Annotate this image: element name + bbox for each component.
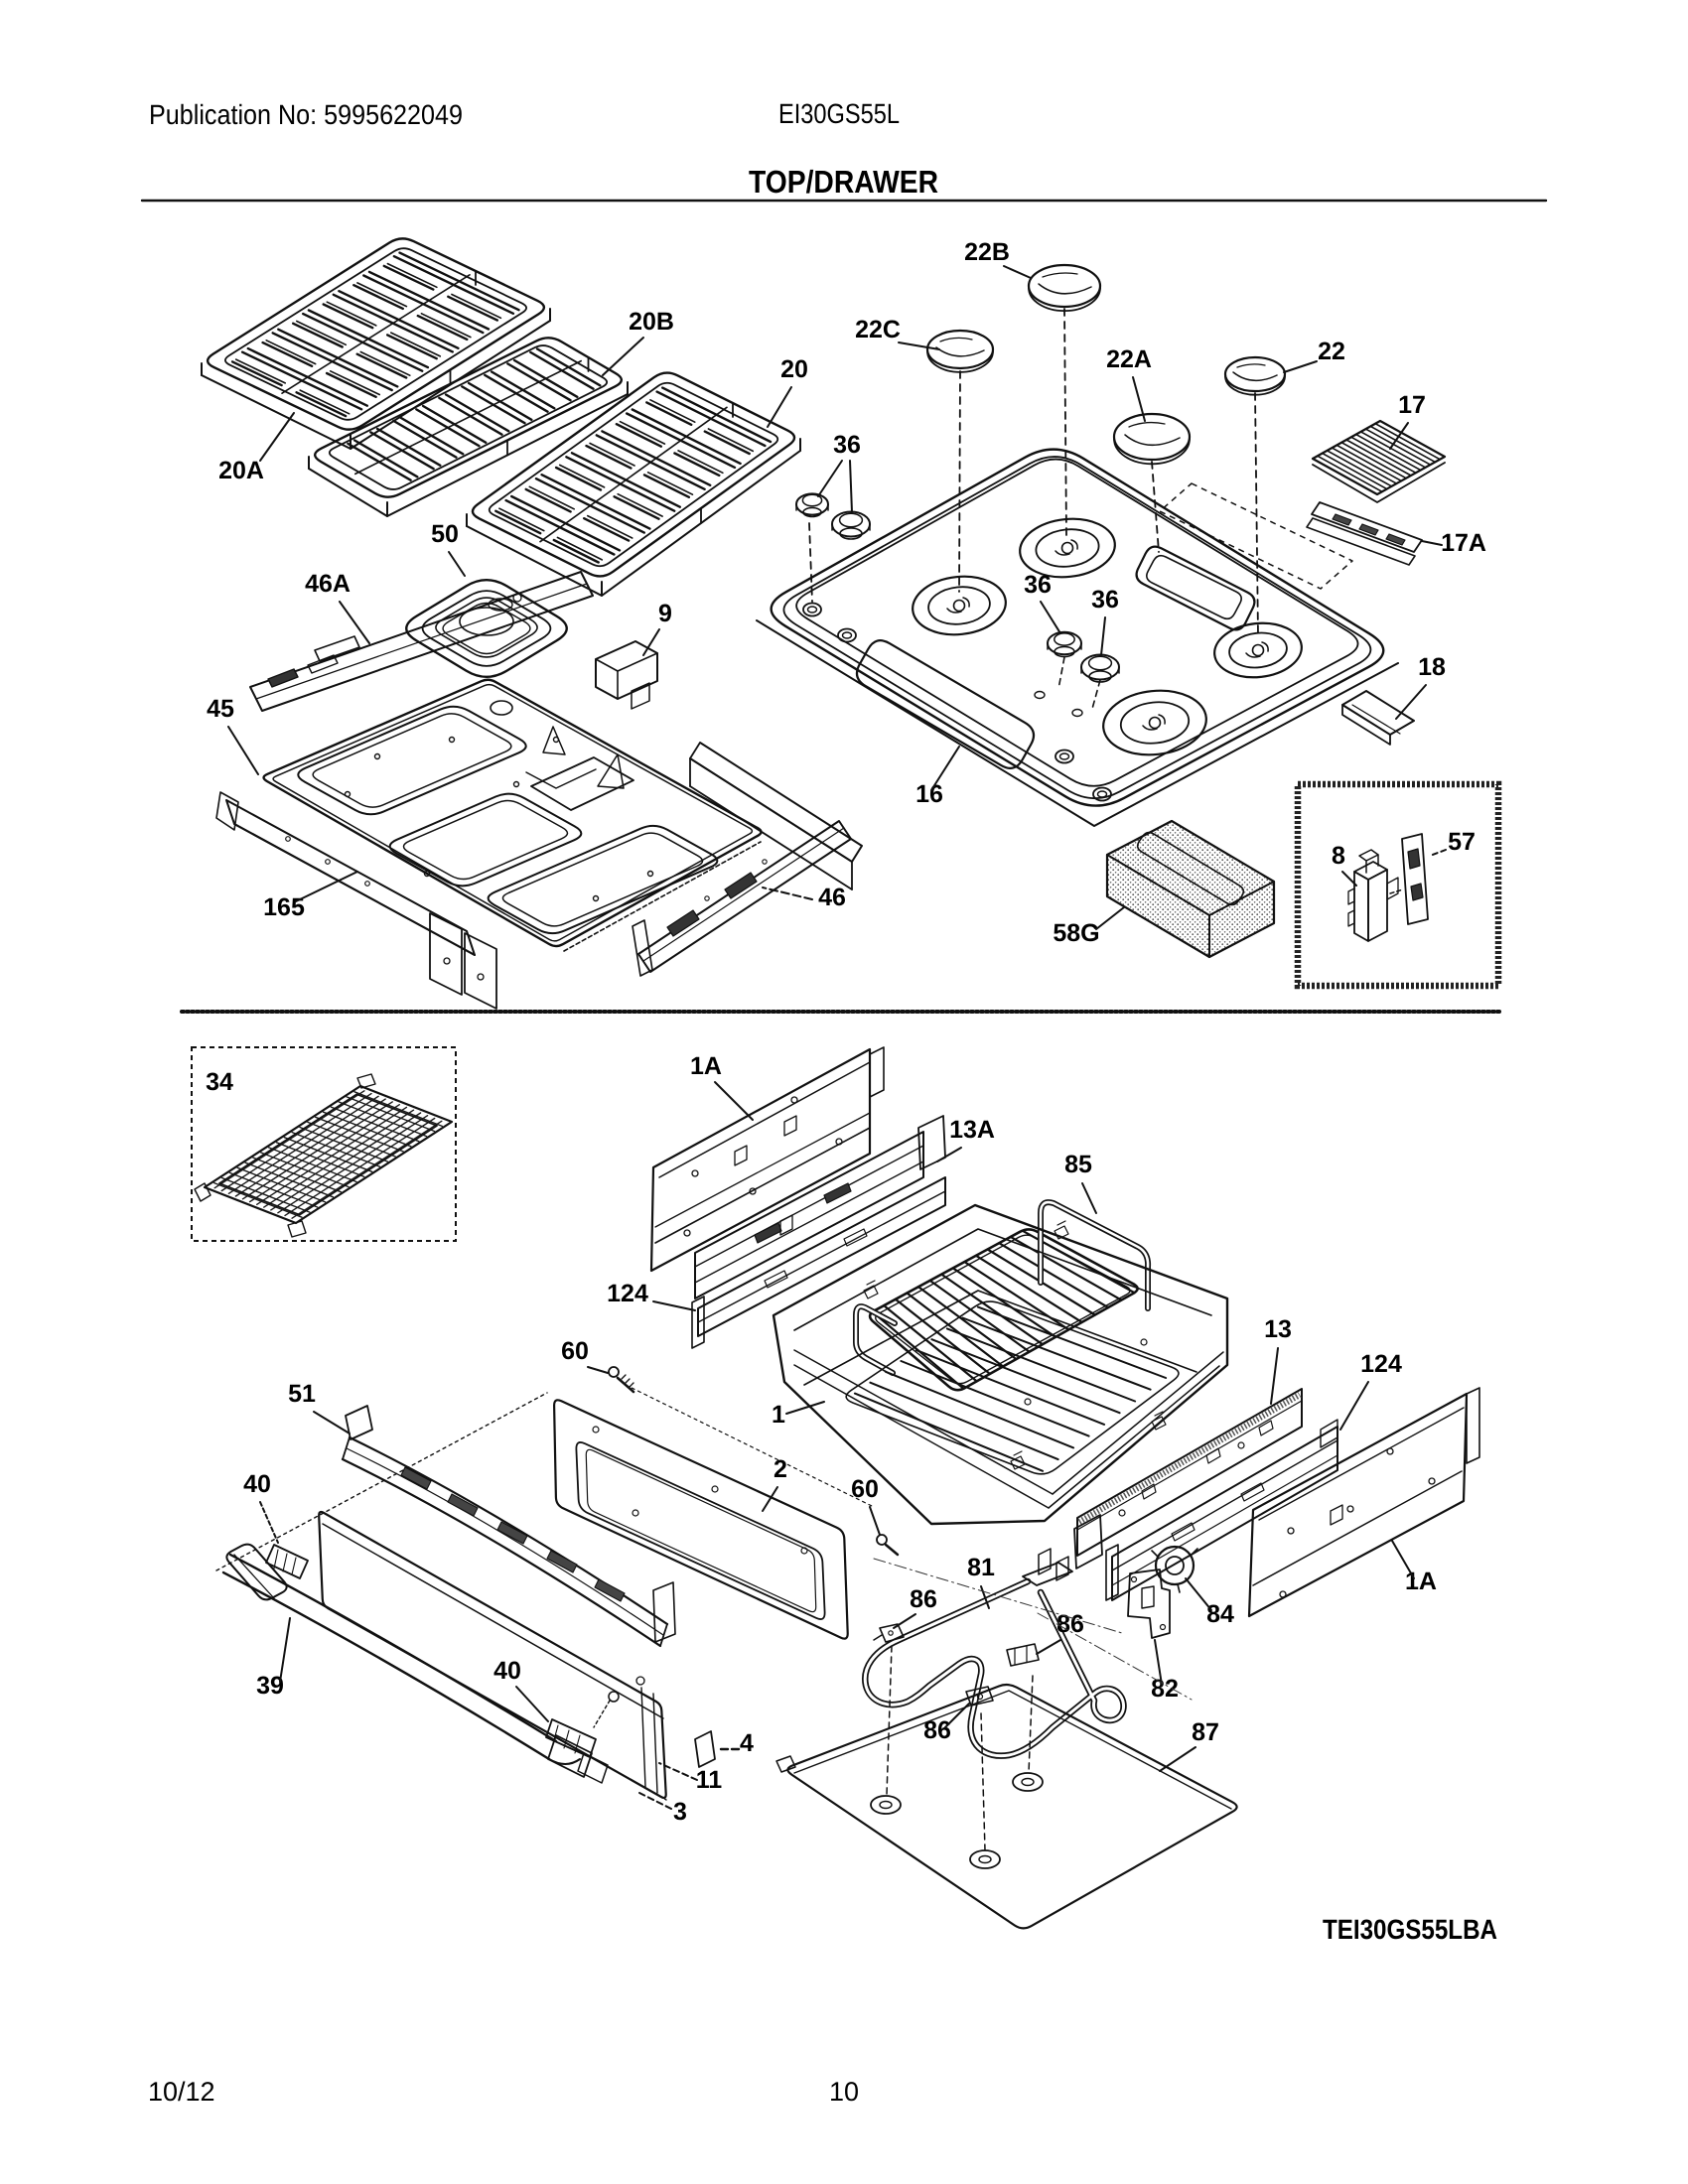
svg-text:85: 85 — [1064, 1151, 1092, 1178]
svg-text:39: 39 — [256, 1672, 284, 1700]
svg-text:36: 36 — [833, 431, 861, 459]
svg-text:45: 45 — [207, 695, 234, 723]
svg-text:57: 57 — [1448, 828, 1476, 856]
svg-text:22B: 22B — [964, 238, 1010, 266]
svg-text:81: 81 — [967, 1554, 995, 1581]
svg-text:86: 86 — [1056, 1610, 1084, 1638]
svg-text:10: 10 — [829, 2077, 859, 2107]
svg-text:TOP/DRAWER: TOP/DRAWER — [749, 164, 938, 200]
svg-text:Publication No: 5995622049: Publication No: 5995622049 — [149, 99, 463, 130]
svg-text:36: 36 — [1024, 571, 1052, 599]
svg-text:165: 165 — [263, 893, 305, 921]
svg-text:2: 2 — [774, 1455, 787, 1483]
svg-text:18: 18 — [1418, 653, 1446, 681]
svg-text:16: 16 — [915, 780, 943, 808]
svg-text:50: 50 — [431, 520, 459, 548]
svg-text:46: 46 — [818, 884, 846, 911]
svg-text:40: 40 — [243, 1470, 271, 1498]
svg-text:TEI30GS55LBA: TEI30GS55LBA — [1323, 1914, 1497, 1945]
svg-text:36: 36 — [1091, 586, 1119, 614]
svg-text:EI30GS55L: EI30GS55L — [778, 98, 900, 129]
svg-text:40: 40 — [493, 1657, 521, 1685]
svg-text:86: 86 — [923, 1716, 951, 1744]
svg-text:22: 22 — [1318, 338, 1345, 365]
svg-text:1A: 1A — [690, 1052, 722, 1080]
svg-text:11: 11 — [696, 1766, 723, 1794]
svg-text:4: 4 — [740, 1729, 754, 1757]
svg-text:20A: 20A — [218, 457, 264, 484]
svg-text:34: 34 — [206, 1068, 233, 1096]
svg-text:86: 86 — [910, 1585, 937, 1613]
svg-text:51: 51 — [288, 1380, 316, 1408]
svg-text:60: 60 — [561, 1337, 589, 1365]
svg-text:13: 13 — [1264, 1315, 1292, 1343]
svg-text:9: 9 — [658, 600, 672, 627]
svg-text:87: 87 — [1192, 1718, 1219, 1746]
svg-text:124: 124 — [607, 1280, 648, 1307]
svg-text:1: 1 — [772, 1401, 785, 1429]
svg-text:3: 3 — [673, 1798, 687, 1826]
svg-text:10/12: 10/12 — [148, 2077, 215, 2107]
svg-text:124: 124 — [1360, 1350, 1402, 1378]
svg-text:8: 8 — [1332, 842, 1345, 870]
svg-text:17A: 17A — [1441, 529, 1486, 557]
svg-text:13A: 13A — [949, 1116, 995, 1144]
svg-text:22C: 22C — [855, 316, 901, 343]
svg-text:22A: 22A — [1106, 345, 1152, 373]
svg-text:60: 60 — [851, 1475, 879, 1503]
svg-text:20: 20 — [780, 355, 808, 383]
svg-text:17: 17 — [1398, 391, 1426, 419]
svg-text:58G: 58G — [1053, 919, 1099, 947]
svg-text:20B: 20B — [629, 308, 674, 336]
svg-text:46A: 46A — [305, 570, 351, 598]
svg-text:84: 84 — [1206, 1600, 1234, 1628]
